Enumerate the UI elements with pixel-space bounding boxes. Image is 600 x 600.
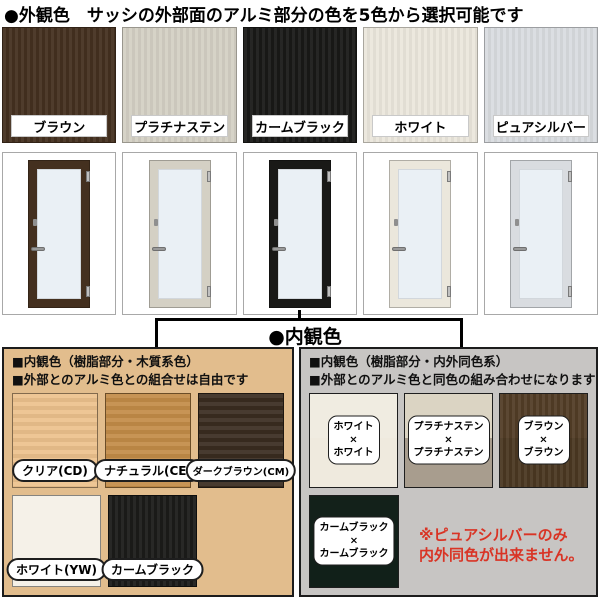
- interior-same-color-panel: ■内観色（樹脂部分・内外同色系） ■外部とのアルミ色と同色の組み合わせになります…: [299, 347, 598, 597]
- interior-swatch-white: ホワイト(YW): [12, 495, 101, 587]
- panel-heading: ■内観色（樹脂部分・内外同色系）: [309, 353, 588, 371]
- door-hinge-icon: [447, 171, 451, 182]
- multiply-icon: ×: [414, 434, 484, 447]
- door-frame: [149, 160, 211, 308]
- combo-label: カームブラック × カームブラック: [313, 517, 394, 566]
- panel-heading: ■外部とのアルミ色との組合せは自由です: [12, 371, 284, 389]
- multiply-icon: ×: [319, 535, 388, 548]
- door-handle-icon: [513, 247, 527, 251]
- door-lock-icon: [394, 219, 398, 226]
- door-preview-platinum-stain: [122, 152, 236, 315]
- combo-swatch-brown: ブラウン × ブラウン: [499, 393, 588, 488]
- door-hinge-icon: [86, 286, 90, 297]
- door-preview-brown: [2, 152, 116, 315]
- exterior-swatch-label: ピュアシルバー: [493, 115, 589, 137]
- exterior-color-row: ブラウン プラチナステン カームブラック ホワイト ピュアシルバー: [2, 27, 598, 143]
- door-frame: [28, 160, 90, 308]
- exterior-swatch-label: プラチナステン: [131, 115, 227, 137]
- door-hinge-icon: [327, 286, 331, 297]
- door-hinge-icon: [568, 286, 572, 297]
- interior-color-title: ●内観色: [225, 322, 385, 349]
- door-lock-icon: [274, 219, 278, 226]
- interior-swatch-natural: ナチュラル(CE): [105, 393, 191, 488]
- combo-swatch-white: ホワイト × ホワイト: [309, 393, 398, 488]
- door-handle-icon: [152, 247, 166, 251]
- door-hinge-icon: [207, 171, 211, 182]
- exterior-swatch-label: ブラウン: [11, 115, 107, 137]
- exterior-swatch-label: ホワイト: [372, 115, 468, 137]
- door-frame: [510, 160, 572, 308]
- door-lock-icon: [515, 219, 519, 226]
- combo-swatch-calm-black: カームブラック × カームブラック: [309, 495, 399, 588]
- door-preview-pure-silver: [484, 152, 598, 315]
- door-lock-icon: [33, 219, 37, 226]
- door-handle-icon: [31, 247, 45, 251]
- door-frame: [269, 160, 331, 308]
- door-handle-icon: [272, 247, 286, 251]
- door-glass: [278, 169, 322, 299]
- combo-label: プラチナステン × プラチナステン: [408, 416, 490, 465]
- exterior-swatch-calm-black: カームブラック: [243, 27, 357, 143]
- connector-line: [460, 318, 463, 347]
- door-frame: [389, 160, 451, 308]
- door-hinge-icon: [327, 171, 331, 182]
- exterior-swatch-brown: ブラウン: [2, 27, 116, 143]
- exterior-swatch-white: ホワイト: [363, 27, 477, 143]
- interior-swatch-dark-brown: ダークブラウン(CM): [198, 393, 284, 488]
- connector-line: [155, 318, 463, 321]
- combo-label: ホワイト × ホワイト: [328, 416, 380, 465]
- wood-swatch-row: ホワイト(YW) カームブラック: [12, 495, 284, 587]
- door-preview-white: [363, 152, 477, 315]
- swatch-pill-label: ホワイト(YW): [6, 558, 107, 581]
- exterior-swatch-pure-silver: ピュアシルバー: [484, 27, 598, 143]
- interior-swatch-clear: クリア(CD): [12, 393, 98, 488]
- catalog-image: ●外観色 サッシの外部面のアルミ部分の色を5色から選択可能です ブラウン プラチ…: [0, 0, 600, 600]
- door-lock-icon: [154, 219, 158, 226]
- door-hinge-icon: [568, 171, 572, 182]
- door-handle-icon: [392, 247, 406, 251]
- door-glass: [37, 169, 81, 299]
- interior-wood-panel: ■内観色（樹脂部分・木質系色） ■外部とのアルミ色との組合せは自由です クリア(…: [2, 347, 294, 597]
- door-glass: [398, 169, 442, 299]
- panel-heading: ■内観色（樹脂部分・木質系色）: [12, 353, 284, 371]
- door-preview-calm-black: [243, 152, 357, 315]
- swatch-pill-label: カームブラック: [101, 558, 204, 581]
- connector-line: [155, 318, 158, 347]
- combo-label: ブラウン × ブラウン: [518, 416, 570, 465]
- door-glass: [158, 169, 202, 299]
- page-title: ●外観色 サッシの外部面のアルミ部分の色を5色から選択可能です: [4, 1, 596, 26]
- door-glass: [519, 169, 563, 299]
- combo-swatch-row: カームブラック × カームブラック ※ピュアシルバーのみ 内外同色が出来ません。: [309, 495, 588, 588]
- swatch-pill-label: ダークブラウン(CM): [186, 459, 296, 482]
- pure-silver-note: ※ピュアシルバーのみ 内外同色が出来ません。: [419, 525, 584, 588]
- exterior-swatch-label: カームブラック: [252, 115, 348, 137]
- door-hinge-icon: [207, 286, 211, 297]
- swatch-pill-label: クリア(CD): [12, 459, 98, 482]
- multiply-icon: ×: [524, 434, 564, 447]
- wood-swatch-row: クリア(CD) ナチュラル(CE) ダークブラウン(CM): [12, 393, 284, 488]
- door-hinge-icon: [86, 171, 90, 182]
- interior-swatch-calm-black: カームブラック: [108, 495, 197, 587]
- multiply-icon: ×: [334, 434, 374, 447]
- exterior-swatch-platinum-stain: プラチナステン: [122, 27, 236, 143]
- door-preview-row: [2, 152, 598, 315]
- panel-heading: ■外部とのアルミ色と同色の組み合わせになります: [309, 371, 588, 389]
- door-hinge-icon: [447, 286, 451, 297]
- combo-swatch-row: ホワイト × ホワイト プラチナステン × プラチナステン ブラウン: [309, 393, 588, 488]
- combo-swatch-platinum-stain: プラチナステン × プラチナステン: [404, 393, 493, 488]
